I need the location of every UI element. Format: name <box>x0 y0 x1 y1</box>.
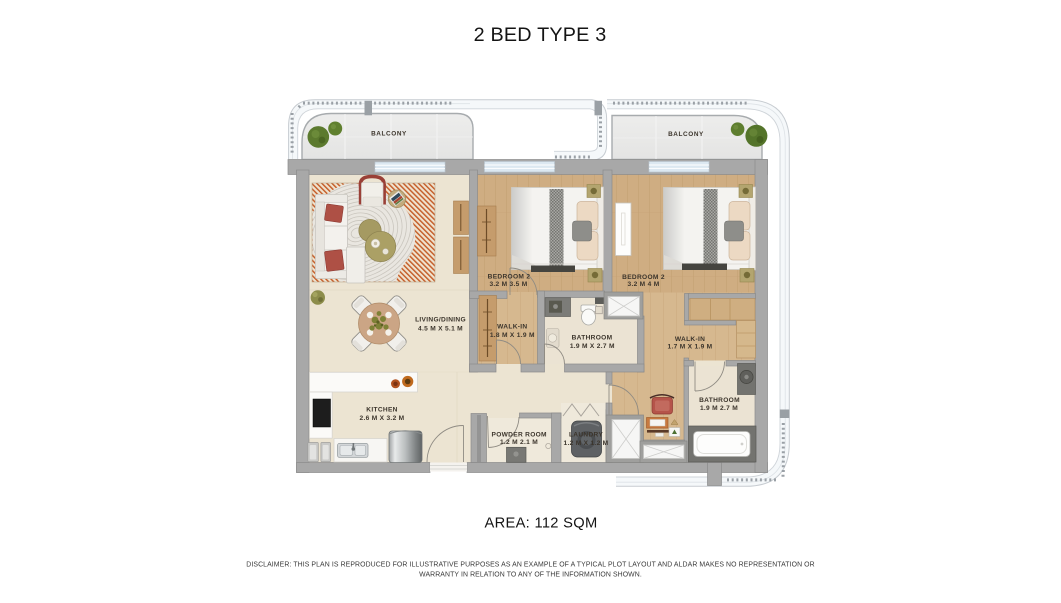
svg-text:POWDER ROOM: POWDER ROOM <box>492 432 548 439</box>
svg-text:BATHROOM: BATHROOM <box>572 335 613 342</box>
svg-text:KITCHEN: KITCHEN <box>366 407 397 414</box>
svg-text:BEDROOM 2: BEDROOM 2 <box>622 274 665 281</box>
svg-text:1.2 M X 1.2 M: 1.2 M X 1.2 M <box>564 440 609 447</box>
svg-text:LAUNDRY: LAUNDRY <box>569 432 603 439</box>
svg-text:BEDROOM 2: BEDROOM 2 <box>488 273 531 280</box>
svg-text:3.2 M 3.5 M: 3.2 M 3.5 M <box>489 281 527 288</box>
svg-text:1.8 M X 1.9 M: 1.8 M X 1.9 M <box>490 332 535 339</box>
svg-text:3.2 M 4 M: 3.2 M 4 M <box>627 281 659 288</box>
svg-text:1.7 M X 1.9 M: 1.7 M X 1.9 M <box>668 344 713 351</box>
svg-text:AREA: 112 SQM: AREA: 112 SQM <box>484 516 597 532</box>
svg-text:1.2 M 2.1 M: 1.2 M 2.1 M <box>500 439 538 446</box>
svg-text:BALCONY: BALCONY <box>371 130 407 137</box>
svg-text:BALCONY: BALCONY <box>668 131 704 138</box>
svg-text:LIVING/DINING: LIVING/DINING <box>415 317 466 324</box>
svg-text:WALK-IN: WALK-IN <box>675 336 705 343</box>
svg-text:BATHROOM: BATHROOM <box>699 397 740 404</box>
svg-text:2 BED TYPE 3: 2 BED TYPE 3 <box>474 24 607 46</box>
svg-text:WARRANTY IN RELATION TO ANY OF: WARRANTY IN RELATION TO ANY OF THE INFOR… <box>419 572 642 579</box>
svg-text:DISCLAIMER: THIS PLAN IS REPRO: DISCLAIMER: THIS PLAN IS REPRODUCED FOR … <box>246 562 814 569</box>
svg-text:1.9 M X 2.7 M: 1.9 M X 2.7 M <box>570 343 615 350</box>
svg-text:1.9 M 2.7 M: 1.9 M 2.7 M <box>700 405 738 412</box>
svg-text:2.6 M X 3.2 M: 2.6 M X 3.2 M <box>360 415 405 422</box>
svg-text:WALK-IN: WALK-IN <box>497 323 527 330</box>
svg-text:4.5 M X 5.1 M: 4.5 M X 5.1 M <box>418 326 463 333</box>
